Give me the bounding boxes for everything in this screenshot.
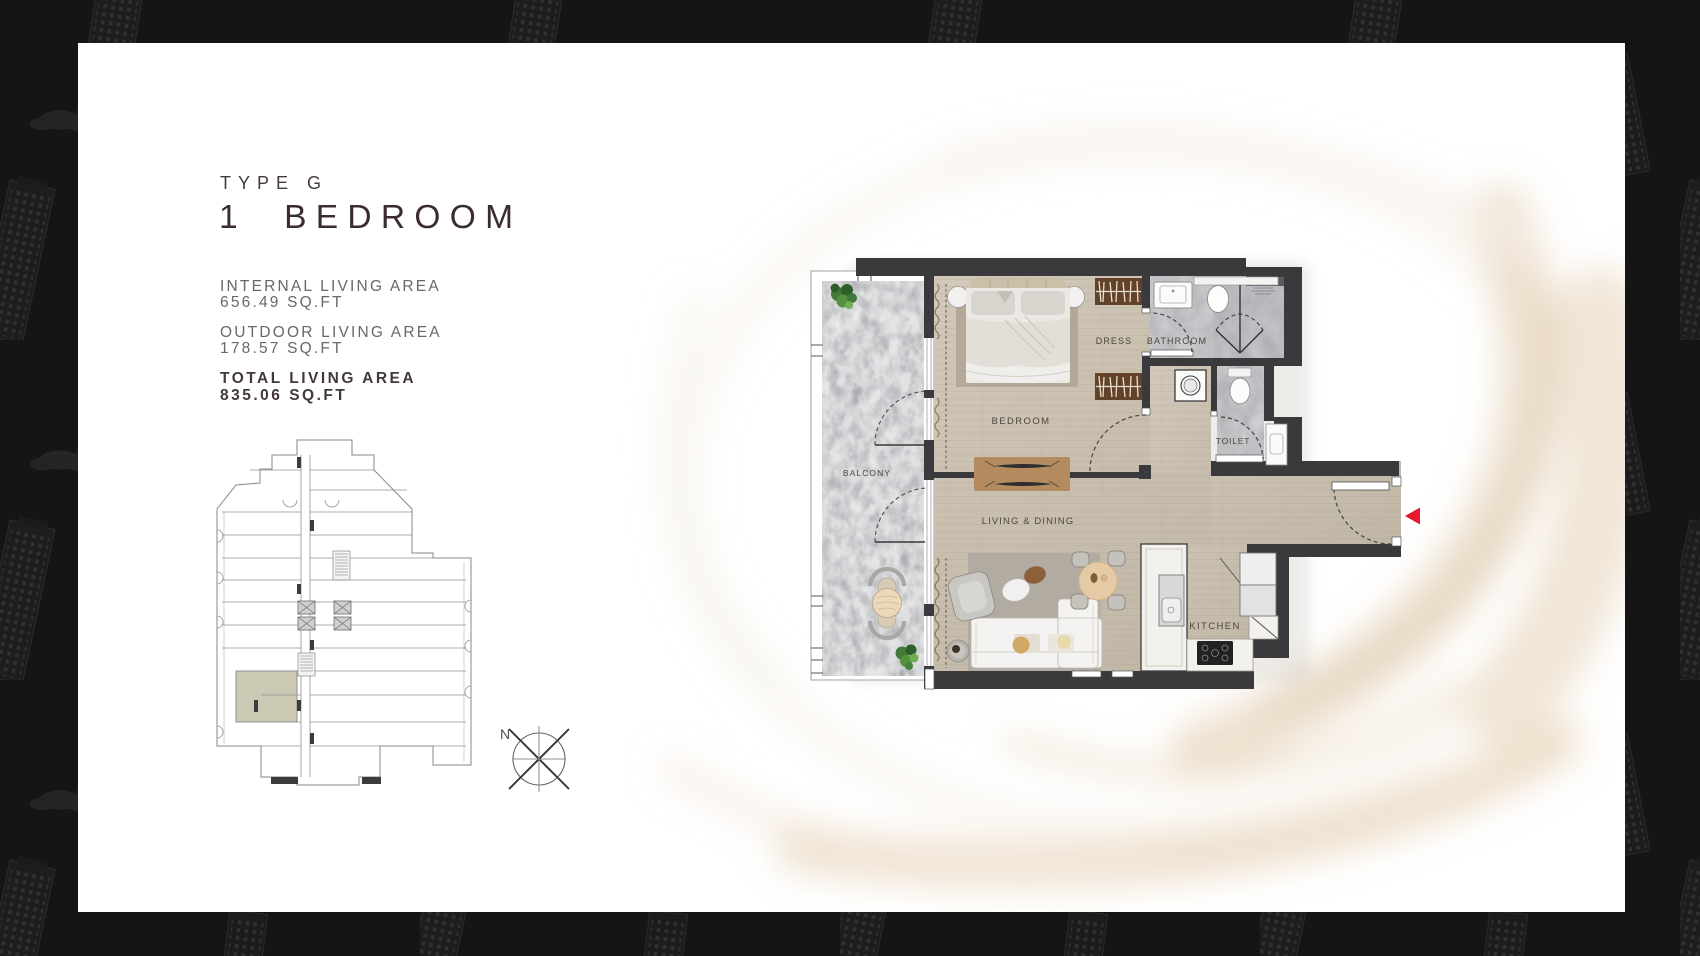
svg-text:N: N (500, 726, 510, 742)
svg-text:BEDROOM: BEDROOM (992, 416, 1051, 427)
svg-text:DRESS: DRESS (1096, 336, 1133, 346)
svg-text:LIVING & DINING: LIVING & DINING (982, 516, 1075, 527)
svg-text:BALCONY: BALCONY (843, 468, 891, 478)
svg-text:KITCHEN: KITCHEN (1189, 621, 1241, 632)
svg-text:BATHROOM: BATHROOM (1147, 336, 1207, 346)
svg-text:TOILET: TOILET (1216, 436, 1250, 446)
